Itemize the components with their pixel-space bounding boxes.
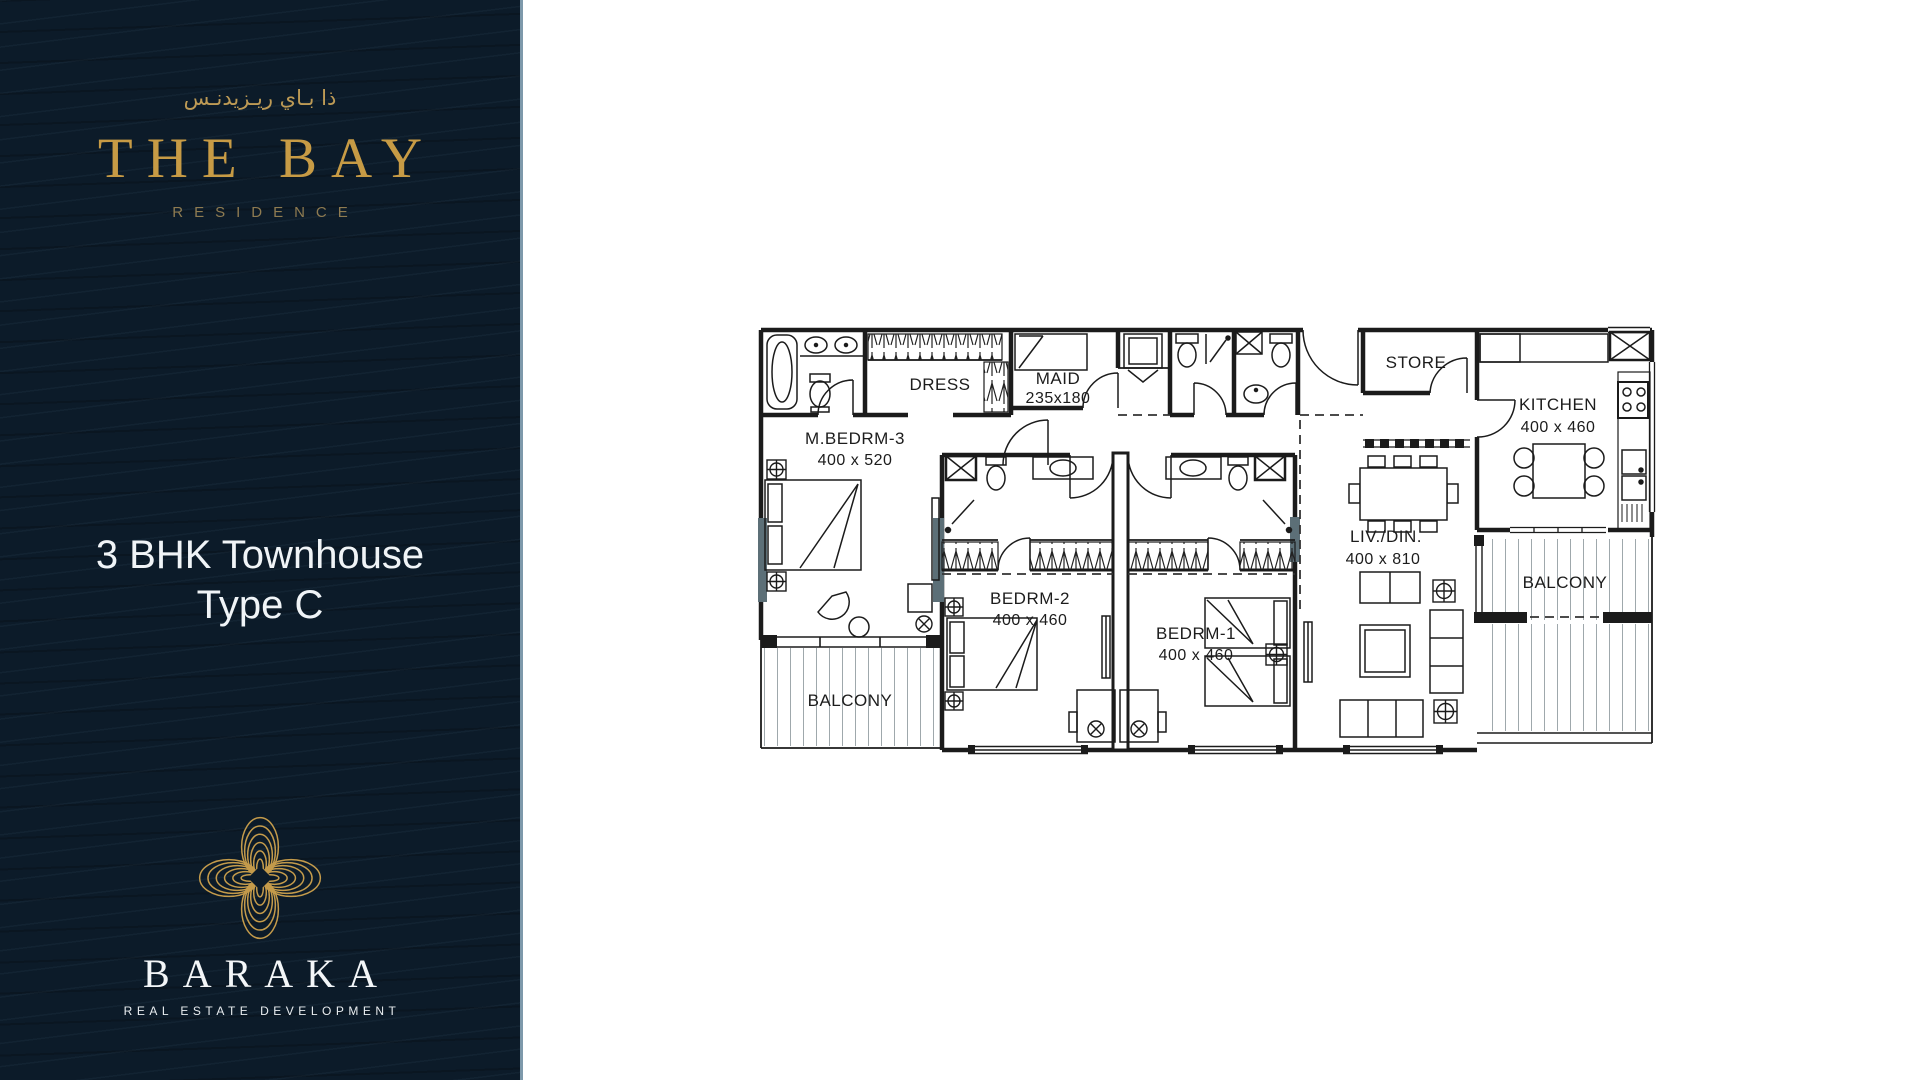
- room-label-store: STORE: [1386, 353, 1447, 372]
- brand-sidebar: ذا بـاي ريـزيدنـس THE BAY RESIDENCE 3 BH…: [0, 0, 523, 1080]
- unit-title-line2: Type C: [0, 580, 520, 630]
- brand-block: ذا بـاي ريـزيدنـس THE BAY RESIDENCE: [0, 86, 520, 221]
- developer-block: BARAKA REAL ESTATE DEVELOPMENT: [0, 812, 520, 1018]
- room-label-bedrm2: BEDRM-2: [990, 589, 1070, 608]
- room-label-mbedrm3: M.BEDRM-3: [805, 429, 905, 448]
- room-label-dress: DRESS: [909, 375, 970, 394]
- window-band-left: [761, 635, 942, 648]
- brand-subtitle: RESIDENCE: [0, 204, 520, 221]
- bedrm2-fixtures: [946, 456, 1111, 690]
- developer-name: BARAKA: [0, 950, 520, 997]
- room-dims-kitchen: 400 x 460: [1521, 419, 1596, 436]
- brand-arabic-text: ذا بـاي ريـزيدنـس: [0, 86, 520, 110]
- brand-name: THE BAY: [0, 126, 520, 191]
- room-dims-livdin: 400 x 810: [1346, 551, 1421, 568]
- bottom-windows: [968, 745, 1443, 754]
- room-label-balcony-left: BALCONY: [808, 691, 893, 710]
- room-label-kitchen: KITCHEN: [1519, 395, 1597, 414]
- room-dims-maid: 235x180: [1026, 390, 1091, 407]
- foyer-screen: [1363, 439, 1470, 448]
- unit-title-line1: 3 BHK Townhouse: [0, 530, 520, 580]
- room-label-maid: MAID: [1036, 369, 1081, 388]
- floor-plan-drawing: DRESS MAID 235x180 STORE KITCHEN 400 x 4…: [758, 322, 1658, 758]
- room-label-livdin: LIV./DIN.: [1350, 527, 1422, 546]
- master-bathroom-fixtures: [767, 335, 863, 412]
- baraka-logo-icon: [190, 812, 330, 944]
- mbedrm3-furniture: [765, 480, 939, 637]
- bedrm1-fixtures: [1166, 456, 1292, 706]
- balcony-right-deck: [1480, 539, 1650, 731]
- room-dims-bedrm1: 400 x 460: [1159, 647, 1234, 664]
- developer-subtitle: REAL ESTATE DEVELOPMENT: [0, 1004, 520, 1018]
- room-dims-mbedrm3: 400 x 520: [818, 452, 893, 469]
- floor-plan: DRESS MAID 235x180 STORE KITCHEN 400 x 4…: [758, 322, 1658, 758]
- room-label-balcony-right: BALCONY: [1523, 573, 1608, 592]
- room-dims-bedrm2: 400 x 460: [993, 612, 1068, 629]
- unit-title: 3 BHK Townhouse Type C: [0, 530, 520, 630]
- room-label-bedrm1: BEDRM-1: [1156, 624, 1236, 643]
